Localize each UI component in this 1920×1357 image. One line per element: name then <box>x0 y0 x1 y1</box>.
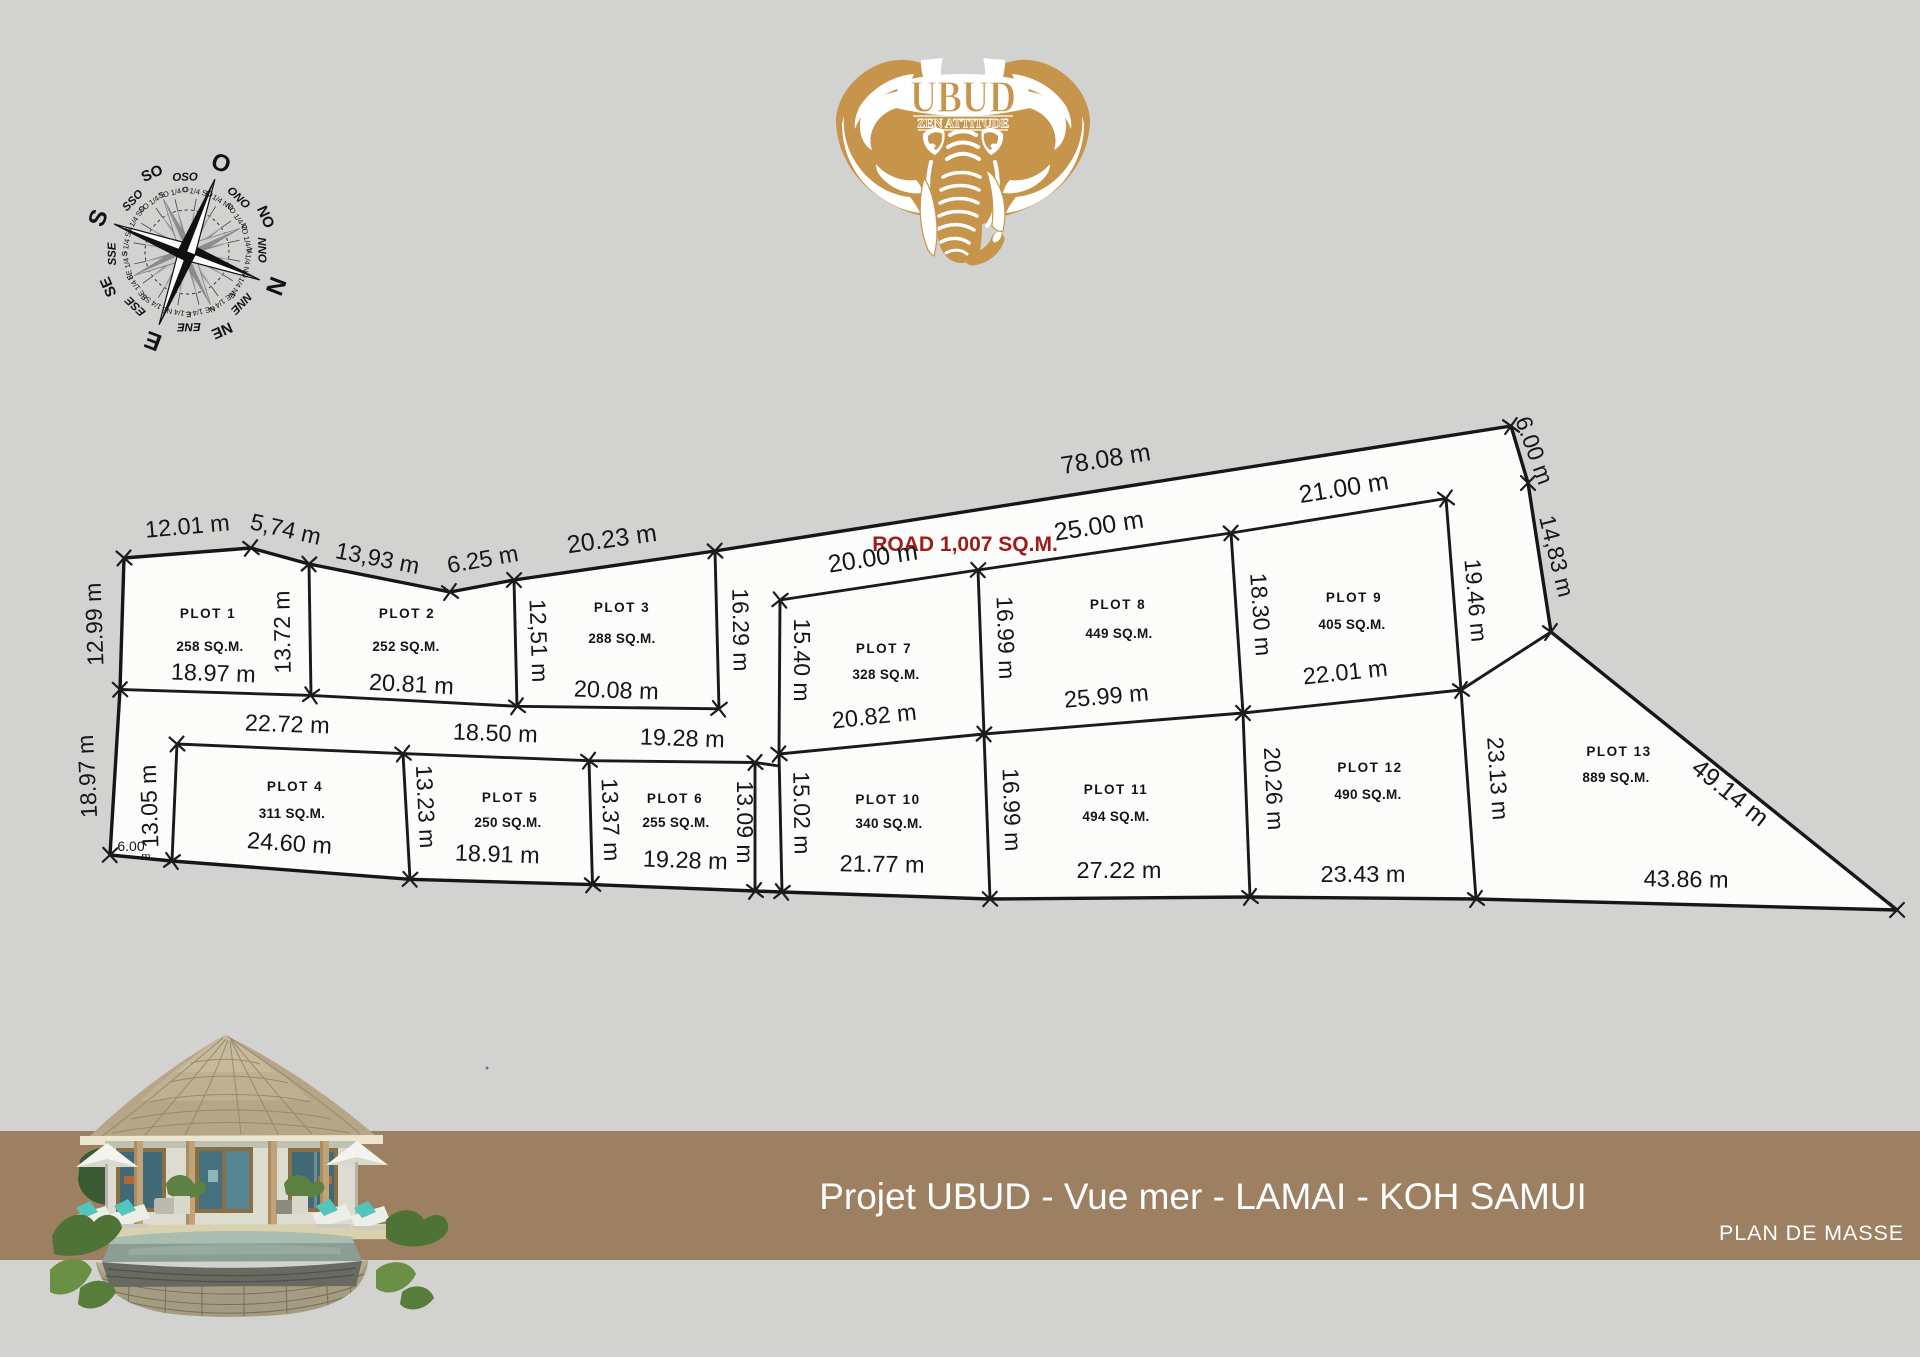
svg-text:20.26 m: 20.26 m <box>1259 746 1289 830</box>
svg-text:PLOT 5: PLOT 5 <box>482 790 538 805</box>
svg-text:20.81 m: 20.81 m <box>368 669 454 699</box>
svg-text:288 SQ.M.: 288 SQ.M. <box>588 631 655 646</box>
svg-text:O: O <box>207 148 234 180</box>
svg-text:13.72 m: 13.72 m <box>268 590 295 674</box>
svg-text:16.99 m: 16.99 m <box>992 596 1021 680</box>
svg-text:19.28 m: 19.28 m <box>642 846 728 875</box>
svg-text:5,74 m: 5,74 m <box>248 508 324 549</box>
svg-text:78.08 m: 78.08 m <box>1059 438 1153 480</box>
svg-text:12.99 m: 12.99 m <box>80 582 109 666</box>
svg-text:340 SQ.M.: 340 SQ.M. <box>855 816 922 831</box>
svg-text:PLOT 1: PLOT 1 <box>180 606 236 621</box>
svg-text:PLOT 8: PLOT 8 <box>1090 597 1146 612</box>
svg-text:18.50 m: 18.50 m <box>452 719 538 748</box>
svg-text:18.97 m: 18.97 m <box>72 734 102 818</box>
svg-text:494 SQ.M.: 494 SQ.M. <box>1082 809 1149 824</box>
svg-text:12,51 m: 12,51 m <box>525 599 554 683</box>
svg-text:PLOT 13: PLOT 13 <box>1586 744 1651 759</box>
svg-text:ENE: ENE <box>177 320 201 333</box>
svg-text:SSE: SSE <box>106 242 119 266</box>
svg-text:258 SQ.M.: 258 SQ.M. <box>176 639 243 654</box>
svg-text:12.01 m: 12.01 m <box>144 509 231 542</box>
svg-text:PLOT 6: PLOT 6 <box>647 791 703 806</box>
svg-text:16.29 m: 16.29 m <box>727 588 754 672</box>
svg-text:NNO: NNO <box>255 237 268 263</box>
svg-text:PLOT 3: PLOT 3 <box>594 600 650 615</box>
svg-text:250 SQ.M.: 250 SQ.M. <box>474 815 541 830</box>
svg-text:PLOT 11: PLOT 11 <box>1084 782 1149 797</box>
svg-text:UBUD: UBUD <box>910 71 1016 122</box>
svg-text:16.99 m: 16.99 m <box>998 768 1027 852</box>
svg-text:NO: NO <box>253 203 278 231</box>
svg-text:6.25 m: 6.25 m <box>445 540 520 578</box>
svg-text:13.23 m: 13.23 m <box>411 764 441 848</box>
svg-text:ZEN ATTITUDE: ZEN ATTITUDE <box>917 116 1009 131</box>
svg-text:18.91 m: 18.91 m <box>454 840 540 869</box>
svg-text:21.77 m: 21.77 m <box>839 850 924 877</box>
svg-text:490 SQ.M.: 490 SQ.M. <box>1334 787 1401 802</box>
svg-text:23.43 m: 23.43 m <box>1321 861 1406 887</box>
svg-text:15.40 m: 15.40 m <box>789 618 815 701</box>
svg-text:405 SQ.M.: 405 SQ.M. <box>1318 617 1385 632</box>
svg-text:N 1/4 NO: N 1/4 NO <box>240 246 254 278</box>
svg-text:43.86 m: 43.86 m <box>1643 865 1728 892</box>
svg-text:13.05 m: 13.05 m <box>135 764 164 848</box>
svg-text:SO: SO <box>139 161 166 185</box>
svg-text:m: m <box>141 851 150 863</box>
svg-text:PLOT 4: PLOT 4 <box>267 779 323 794</box>
svg-text:OSO: OSO <box>172 171 198 184</box>
svg-text:255 SQ.M.: 255 SQ.M. <box>642 815 709 830</box>
svg-text:E: E <box>141 325 166 356</box>
svg-text:19.28 m: 19.28 m <box>639 724 725 753</box>
svg-text:PLOT 10: PLOT 10 <box>855 792 920 807</box>
svg-text:20.08 m: 20.08 m <box>573 676 659 705</box>
svg-text:27.22 m: 27.22 m <box>1077 857 1162 883</box>
svg-text:22.72 m: 22.72 m <box>244 710 330 739</box>
svg-text:PLOT 9: PLOT 9 <box>1326 590 1382 605</box>
svg-text:889 SQ.M.: 889 SQ.M. <box>1582 770 1649 785</box>
svg-text:S: S <box>83 206 114 231</box>
svg-text:18.97 m: 18.97 m <box>170 659 256 688</box>
svg-text:PLOT 7: PLOT 7 <box>856 641 912 656</box>
svg-text:328 SQ.M.: 328 SQ.M. <box>852 667 919 682</box>
svg-text:SE: SE <box>97 274 121 299</box>
svg-text:449 SQ.M.: 449 SQ.M. <box>1085 626 1152 641</box>
svg-text:N: N <box>260 273 291 299</box>
svg-text:20.23 m: 20.23 m <box>565 519 658 559</box>
svg-text:PLOT 12: PLOT 12 <box>1337 760 1402 775</box>
svg-text:13.09 m: 13.09 m <box>732 780 758 863</box>
svg-text:311 SQ.M.: 311 SQ.M. <box>259 806 325 821</box>
svg-text:15.02 m: 15.02 m <box>788 771 815 855</box>
svg-text:13.37 m: 13.37 m <box>597 778 626 862</box>
svg-text:NE: NE <box>209 318 235 342</box>
svg-text:252 SQ.M.: 252 SQ.M. <box>372 639 439 654</box>
svg-text:PLOT 2: PLOT 2 <box>379 606 435 621</box>
